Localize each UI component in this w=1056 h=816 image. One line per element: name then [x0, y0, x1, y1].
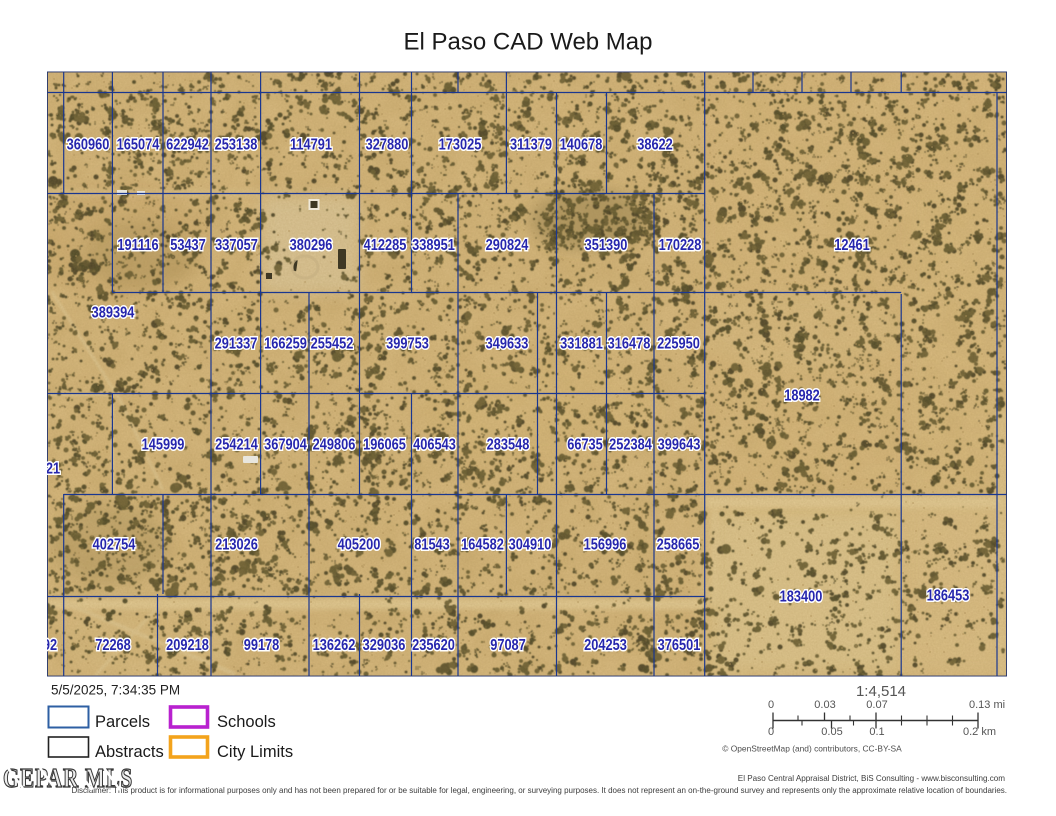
svg-text:Disclaimer: This product is fo: Disclaimer: This product is for informat…: [72, 786, 1008, 795]
svg-text:Schools: Schools: [217, 713, 276, 731]
svg-text:173025: 173025: [439, 136, 482, 154]
svg-text:140678: 140678: [560, 136, 603, 154]
svg-text:Abstracts: Abstracts: [95, 743, 164, 761]
svg-text:166259: 166259: [264, 335, 307, 353]
svg-text:136262: 136262: [313, 637, 356, 655]
svg-text:209218: 209218: [166, 637, 209, 655]
svg-text:183400: 183400: [780, 588, 823, 606]
svg-text:0.1: 0.1: [869, 726, 884, 738]
svg-text:338951: 338951: [412, 237, 455, 255]
svg-text:1:4,514: 1:4,514: [856, 683, 906, 700]
svg-text:252384: 252384: [609, 436, 652, 454]
svg-text:81543: 81543: [414, 536, 450, 554]
svg-text:0.07: 0.07: [866, 699, 887, 711]
svg-text:622942: 622942: [166, 136, 209, 154]
svg-text:66735: 66735: [567, 436, 603, 454]
svg-text:204253: 204253: [584, 637, 627, 655]
svg-text:327880: 327880: [366, 136, 409, 154]
svg-text:367904: 367904: [264, 436, 307, 454]
svg-text:213026: 213026: [215, 536, 258, 554]
svg-text:191116: 191116: [117, 237, 158, 255]
svg-text:311379: 311379: [510, 136, 552, 154]
svg-text:164582: 164582: [461, 536, 504, 554]
svg-text:Parcels: Parcels: [95, 713, 150, 731]
svg-text:329036: 329036: [363, 637, 406, 655]
svg-text:196065: 196065: [363, 436, 406, 454]
svg-text:360960: 360960: [67, 136, 110, 154]
svg-text:0.03: 0.03: [814, 699, 835, 711]
svg-text:402754: 402754: [93, 536, 136, 554]
svg-text:406543: 406543: [413, 436, 456, 454]
svg-text:291337: 291337: [215, 335, 258, 353]
svg-text:0: 0: [768, 699, 774, 711]
svg-text:316478: 316478: [608, 335, 651, 353]
svg-text:72268: 72268: [95, 637, 131, 655]
svg-text:21: 21: [46, 460, 60, 478]
svg-text:186453: 186453: [927, 587, 970, 605]
svg-text:5/5/2025, 7:34:35 PM: 5/5/2025, 7:34:35 PM: [51, 683, 180, 698]
svg-text:283548: 283548: [487, 436, 530, 454]
svg-text:376501: 376501: [658, 637, 701, 655]
svg-text:145999: 145999: [142, 436, 185, 454]
svg-text:254214: 254214: [215, 436, 258, 454]
svg-text:389394: 389394: [92, 304, 135, 322]
svg-text:0.2 km: 0.2 km: [963, 726, 996, 738]
svg-text:99178: 99178: [244, 637, 280, 655]
svg-text:53437: 53437: [170, 237, 206, 255]
svg-text:165074: 165074: [117, 136, 160, 154]
svg-text:156996: 156996: [584, 536, 627, 554]
svg-text:12461: 12461: [834, 237, 870, 255]
svg-text:337057: 337057: [215, 237, 258, 255]
svg-text:0.13 mi: 0.13 mi: [969, 699, 1005, 711]
svg-text:258665: 258665: [657, 536, 700, 554]
svg-text:225950: 225950: [657, 335, 700, 353]
svg-text:97087: 97087: [490, 637, 526, 655]
svg-text:18982: 18982: [784, 387, 820, 405]
svg-text:349633: 349633: [486, 335, 529, 353]
svg-text:380296: 380296: [290, 237, 333, 255]
svg-text:304910: 304910: [509, 536, 552, 554]
svg-text:255452: 255452: [311, 335, 354, 353]
svg-text:399753: 399753: [386, 335, 429, 353]
svg-text:331881: 331881: [560, 335, 603, 353]
svg-text:El Paso CAD Web Map: El Paso CAD Web Map: [404, 29, 653, 56]
svg-text:351390: 351390: [585, 237, 628, 255]
svg-text:City Limits: City Limits: [217, 743, 293, 761]
svg-text:© OpenStreetMap (and) contribu: © OpenStreetMap (and) contributors, CC-B…: [722, 744, 902, 754]
svg-text:253138: 253138: [215, 136, 258, 154]
svg-text:290824: 290824: [486, 237, 529, 255]
svg-text:249806: 249806: [313, 436, 356, 454]
svg-text:412285: 412285: [364, 237, 407, 255]
svg-text:170228: 170228: [659, 237, 702, 255]
svg-text:114791: 114791: [290, 136, 332, 154]
svg-text:399643: 399643: [658, 436, 701, 454]
svg-text:235620: 235620: [412, 637, 455, 655]
svg-text:38622: 38622: [637, 136, 673, 154]
svg-text:405200: 405200: [338, 536, 381, 554]
svg-text:El Paso Central Appraisal Dist: El Paso Central Appraisal District, BiS …: [738, 774, 1005, 783]
